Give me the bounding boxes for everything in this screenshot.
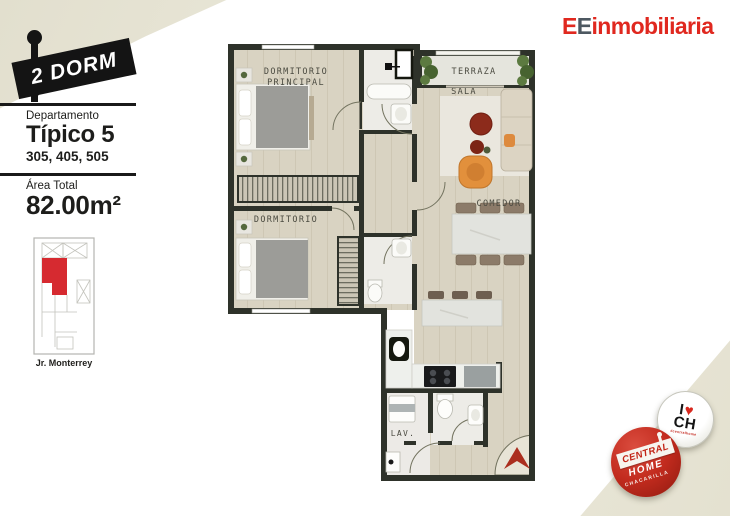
street-label: Jr. Monterrey: [18, 358, 110, 368]
label-master-1: DORMITORIO: [264, 67, 328, 77]
unit-numbers: 305, 405, 505: [26, 149, 109, 164]
label-master-2: PRINCIPAL: [267, 78, 325, 88]
label-laundry: LAV.: [391, 429, 415, 438]
unit-type-title: Típico 5: [26, 121, 114, 149]
label-living: SALA: [451, 87, 477, 97]
central-home-badge: CENTRAL HOME CHACARILLA: [611, 427, 681, 497]
dorm-count-sign: 2 DORM: [10, 28, 150, 108]
logo-e2: E: [577, 13, 592, 39]
label-terrace: TERRAZA: [452, 67, 497, 77]
logo-wordmark: inmobiliaria: [592, 13, 714, 39]
flyer: DORMITORIO PRINCIPAL TERRAZA SALA COMEDO…: [0, 0, 730, 516]
dining-furniture: [452, 203, 531, 265]
divider-line-bottom: [0, 173, 136, 176]
label-dining: COMEDOR: [477, 199, 522, 209]
brand-logo: EEinmobiliaria: [562, 13, 713, 40]
logo-e1: E: [562, 13, 577, 39]
building-locator-diagram: [33, 237, 95, 355]
label-bedroom: DORMITORIO: [254, 215, 318, 225]
area-value: 82.00m²: [26, 190, 121, 221]
divider-line-top: [0, 103, 136, 106]
